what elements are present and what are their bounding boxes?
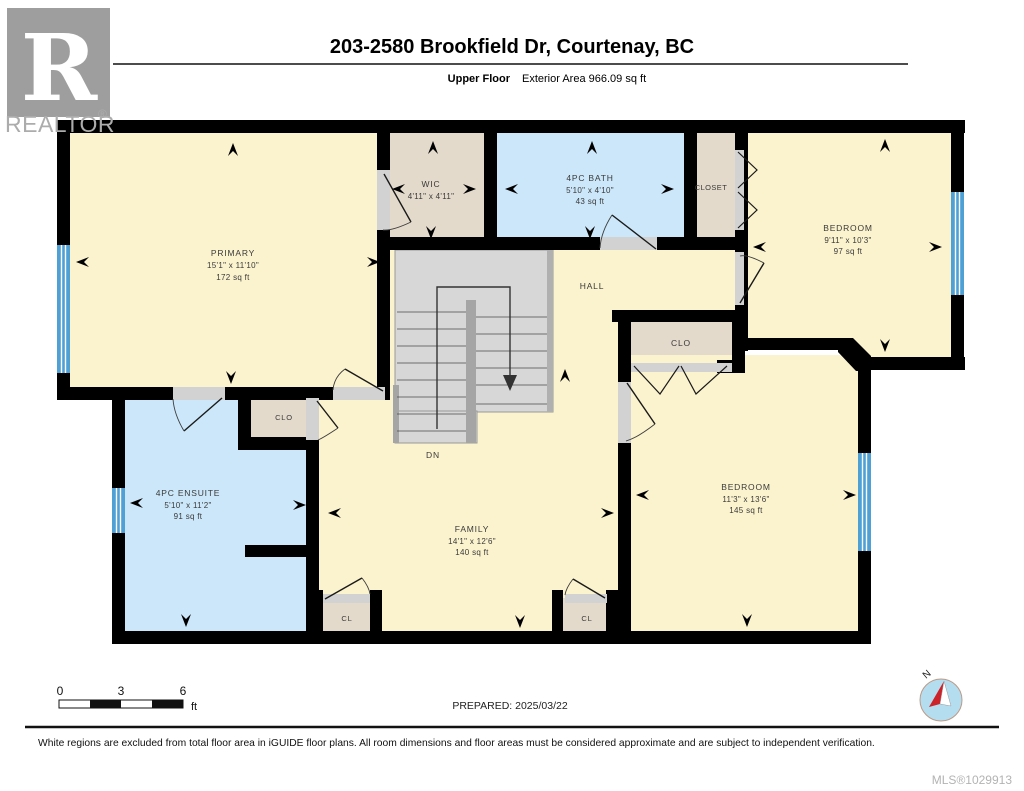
realtor-logo: R REALTOR ® [5, 8, 115, 137]
clo-ensuite-name: CLO [275, 413, 293, 422]
footer: White regions are excluded from total fl… [25, 727, 1012, 787]
scale-bar: 0 3 6 ft [57, 684, 197, 713]
page-title: 203-2580 Brookfield Dr, Courtenay, BC [330, 36, 694, 58]
ensuite-dims: 5'10" x 11'2" [164, 501, 211, 510]
wic-dims: 4'11" x 4'11" [408, 192, 455, 201]
window-bedroom-se [858, 453, 871, 551]
scale-unit-label: ft [191, 701, 197, 713]
family-name: FAMILY [455, 524, 489, 534]
wic-name: WIC [422, 179, 441, 189]
disclaimer-text: White regions are excluded from total fl… [38, 738, 875, 749]
scale-tick-3: 3 [118, 684, 125, 698]
bedroom-ne-dims: 9'11" x 10'3" [824, 236, 871, 245]
primary-floor [63, 126, 384, 394]
window-ensuite [112, 488, 125, 533]
compass-north-label: N [921, 668, 934, 681]
stairs-dn-label: DN [426, 450, 440, 460]
prepared-date: PREPARED: 2025/03/22 [452, 700, 568, 712]
mls-number: MLS®1029913 [932, 773, 1013, 787]
realtor-logo-letter: R [21, 14, 98, 122]
bath-dims: 5'10" x 4'10" [566, 186, 614, 195]
bedroom-ne-name: BEDROOM [823, 223, 873, 233]
primary-dims: 15'1" x 11'10" [207, 261, 259, 270]
primary-name: PRIMARY [211, 248, 255, 258]
window-primary [57, 245, 70, 373]
clo-hall-name: CLO [671, 338, 691, 348]
cl-right-name: CL [581, 614, 592, 623]
exterior-area-label: Exterior Area 966.09 sq ft [522, 73, 646, 85]
floorplan-page: PRIMARY 15'1" x 11'10" 172 sq ft WIC 4'1… [0, 0, 1024, 791]
header: 203-2580 Brookfield Dr, Courtenay, BC Up… [113, 36, 908, 85]
scale-tick-0: 0 [57, 684, 64, 698]
cl-left-name: CL [341, 614, 352, 623]
ensuite-area: 91 sq ft [174, 512, 203, 521]
bedroom-se-dims: 11'3" x 13'6" [722, 495, 769, 504]
registered-mark-icon: ® [98, 107, 107, 121]
window-bedroom-ne [951, 192, 964, 295]
compass-icon: N [920, 668, 962, 721]
bath-floor [490, 126, 691, 244]
bedroom-ne-area: 97 sq ft [834, 247, 863, 256]
bedroom-se-area: 145 sq ft [729, 506, 763, 515]
floor-label: Upper Floor [448, 73, 511, 85]
family-area: 140 sq ft [455, 548, 489, 557]
bedroom-se-name: BEDROOM [721, 482, 771, 492]
bath-name: 4PC BATH [566, 173, 613, 183]
closet-name: CLOSET [695, 183, 727, 192]
primary-area: 172 sq ft [216, 273, 250, 282]
family-dims: 14'1" x 12'6" [448, 537, 496, 546]
ensuite-name: 4PC ENSUITE [156, 488, 221, 498]
bath-area: 43 sq ft [576, 197, 605, 206]
hall-name: HALL [580, 281, 604, 291]
scale-tick-6: 6 [180, 684, 187, 698]
